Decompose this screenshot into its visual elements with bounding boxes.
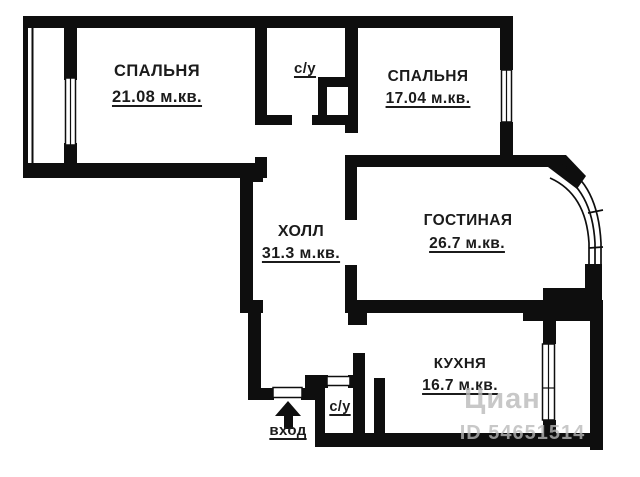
duct-opening [327, 87, 348, 115]
room-label-kitchen: КУХНЯ [427, 356, 493, 372]
room-label-bathroom-top: с/у [287, 61, 323, 77]
wall [23, 16, 513, 28]
entrance-label: вход [262, 423, 314, 439]
room-area-bedroom-1: 21.08 м.кв. [107, 89, 207, 106]
room-label-living-room: ГОСТИНАЯ [417, 213, 519, 229]
room-label-bedroom-2: СПАЛЬНЯ [382, 69, 474, 85]
room-label-hall: ХОЛЛ [270, 224, 332, 241]
entrance-door [273, 388, 302, 398]
balcony-window [23, 16, 34, 166]
room-area-living-room: 26.7 м.кв. [424, 236, 510, 252]
watermark-brand: Циан [445, 383, 560, 416]
watermark-listing-id: ID 54651514 [435, 422, 610, 445]
room-area-hall: 31.3 м.кв. [258, 246, 344, 263]
room-label-bathroom-entry: с/у [320, 400, 360, 415]
room-area-bedroom-2: 17.04 м.кв. [378, 91, 478, 107]
floor-plan: СПАЛЬНЯ 21.08 м.кв. с/у СПАЛЬНЯ 17.04 м.… [0, 0, 640, 477]
bathroom-door [327, 377, 350, 386]
room-label-bedroom-1: СПАЛЬНЯ [107, 63, 207, 80]
